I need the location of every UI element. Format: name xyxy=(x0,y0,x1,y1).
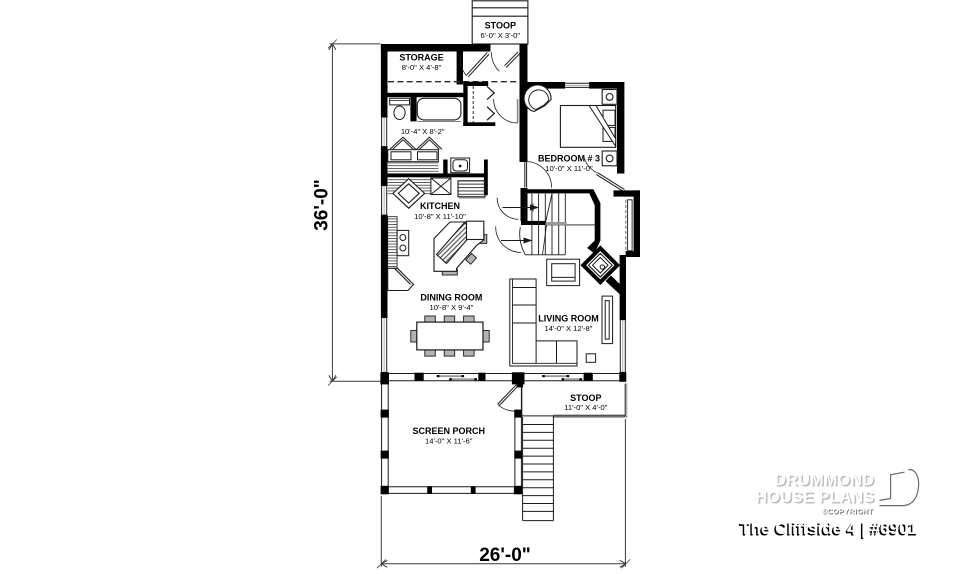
svg-text:KITCHEN: KITCHEN xyxy=(420,201,460,211)
svg-text:STOOP: STOOP xyxy=(570,393,601,403)
svg-text:6'-0" X 3'-0": 6'-0" X 3'-0" xyxy=(481,31,521,40)
svg-text:STOOP: STOOP xyxy=(485,21,516,31)
svg-text:14'-0" X 11'-6": 14'-0" X 11'-6" xyxy=(425,437,473,446)
svg-text:LIVING ROOM: LIVING ROOM xyxy=(538,313,599,323)
svg-text:10'-8" X 11'-10": 10'-8" X 11'-10" xyxy=(414,212,466,221)
svg-text:10'-4" X 8'-2": 10'-4" X 8'-2" xyxy=(401,127,445,136)
svg-text:10'-8" X 9'-4": 10'-8" X 9'-4" xyxy=(430,303,474,312)
svg-text:STORAGE: STORAGE xyxy=(399,53,443,63)
svg-text:DINING ROOM: DINING ROOM xyxy=(420,293,482,303)
svg-text:10'-0" X 11'-0": 10'-0" X 11'-0" xyxy=(545,164,593,173)
svg-text:©COPYRIGHT: ©COPYRIGHT xyxy=(822,508,874,516)
svg-text:8'-0" X 4'-8": 8'-0" X 4'-8" xyxy=(402,63,442,72)
svg-text:11'-0" X 4'-0": 11'-0" X 4'-0" xyxy=(564,403,607,412)
svg-text:14'-0" X 12'-8": 14'-0" X 12'-8" xyxy=(545,324,593,333)
svg-text:The Cliffside 4 | #6901: The Cliffside 4 | #6901 xyxy=(740,519,918,538)
svg-text:DRUMMOND: DRUMMOND xyxy=(774,472,874,489)
svg-text:36'-0": 36'-0" xyxy=(312,179,333,231)
svg-text:HOUSE PLANS: HOUSE PLANS xyxy=(756,489,875,506)
svg-text:BEDROOM # 3: BEDROOM # 3 xyxy=(538,154,600,164)
svg-text:SCREEN PORCH: SCREEN PORCH xyxy=(412,426,485,436)
svg-text:26'-0": 26'-0" xyxy=(479,545,531,566)
